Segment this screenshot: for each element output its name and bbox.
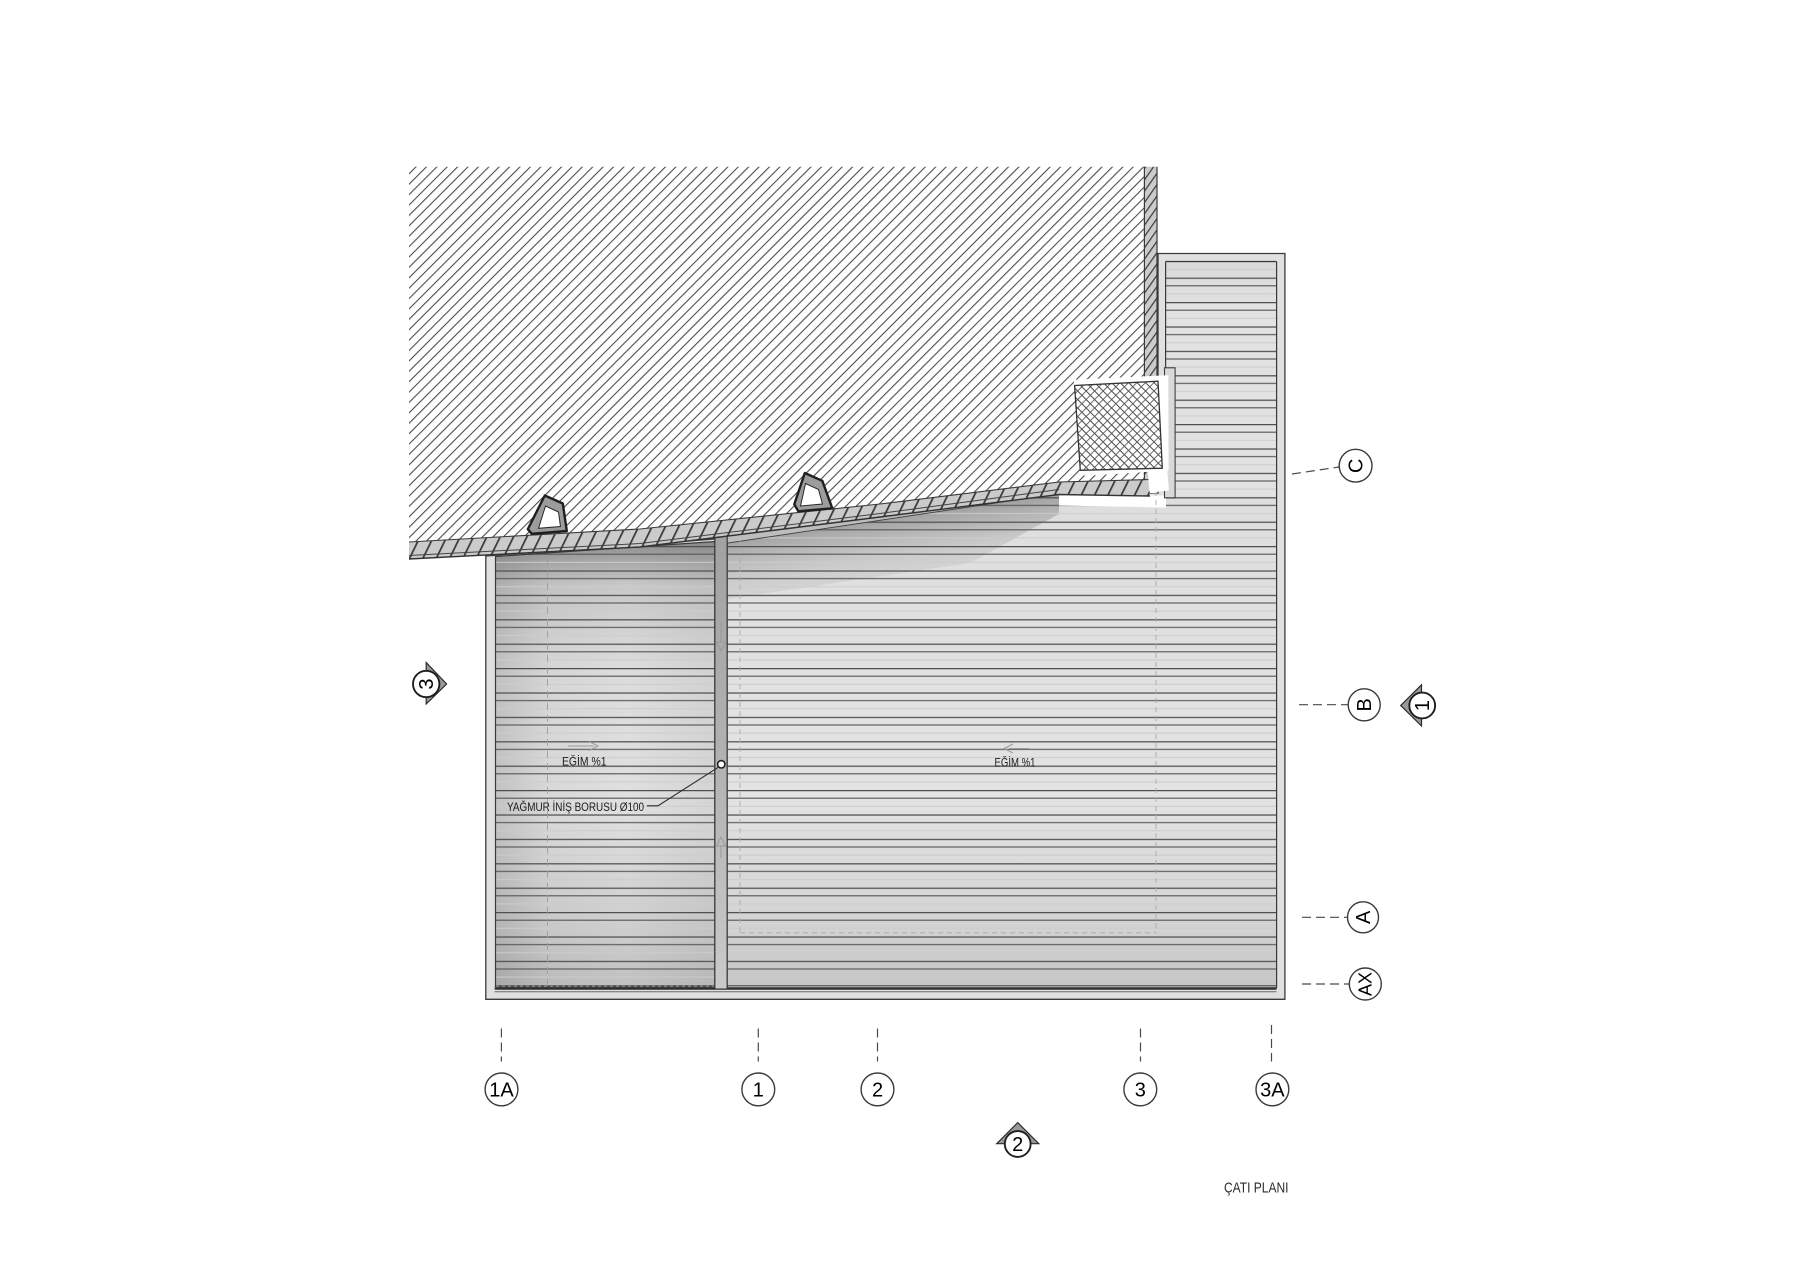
svg-text:EĞİM %1: EĞİM %1 [995, 756, 1036, 770]
svg-text:C: C [1346, 458, 1368, 472]
svg-text:A: A [1353, 910, 1375, 924]
svg-text:1: 1 [753, 1079, 764, 1101]
svg-text:EĞİM %1: EĞİM %1 [562, 755, 607, 769]
svg-text:2: 2 [1012, 1134, 1023, 1156]
svg-text:3: 3 [416, 678, 438, 689]
svg-text:YAĞMUR İNİŞ BORUSU Ø100: YAĞMUR İNİŞ BORUSU Ø100 [507, 799, 644, 814]
svg-text:1A: 1A [489, 1079, 514, 1101]
svg-text:AX: AX [1356, 972, 1376, 996]
svg-text:ÇATI PLANI: ÇATI PLANI [1224, 1180, 1289, 1197]
svg-text:B: B [1354, 698, 1376, 711]
svg-text:2: 2 [872, 1079, 883, 1101]
svg-text:1: 1 [1412, 700, 1434, 711]
svg-text:3: 3 [1135, 1079, 1146, 1101]
svg-text:3A: 3A [1260, 1079, 1285, 1101]
